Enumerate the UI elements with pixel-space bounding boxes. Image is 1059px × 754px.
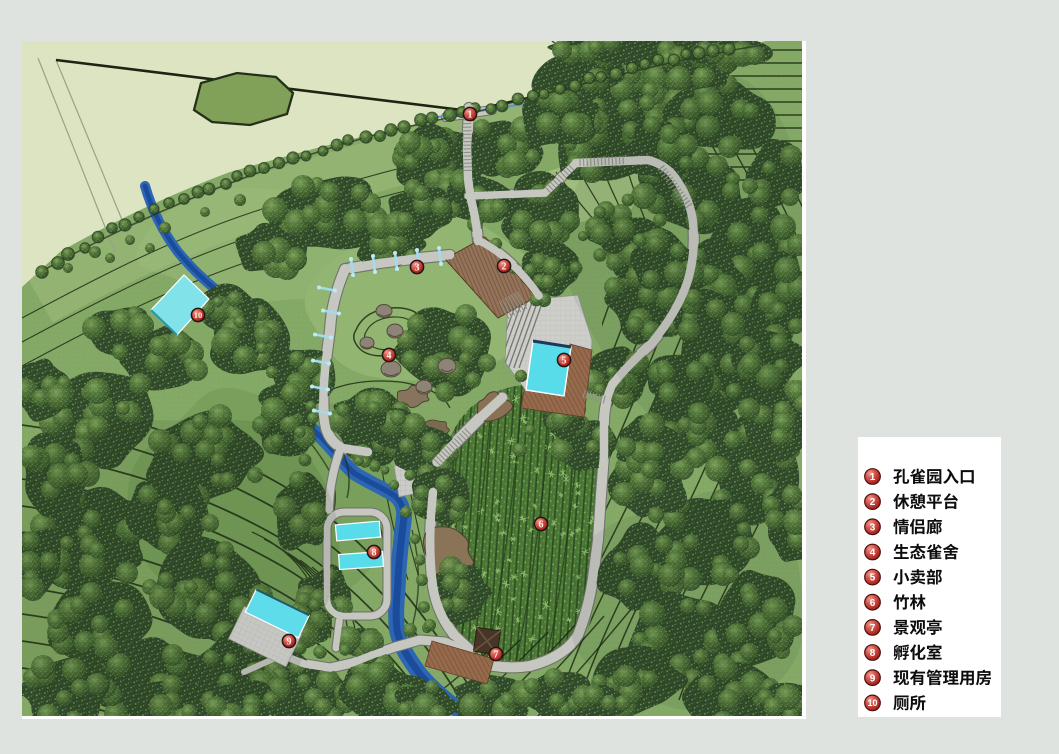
svg-text:8: 8 [870, 648, 876, 659]
svg-text:2: 2 [870, 497, 876, 508]
svg-text:9: 9 [287, 637, 292, 648]
svg-text:5: 5 [870, 573, 876, 584]
svg-text:8: 8 [372, 548, 377, 559]
svg-text:6: 6 [870, 598, 876, 609]
svg-text:7: 7 [494, 650, 499, 661]
svg-text:3: 3 [870, 522, 876, 533]
svg-text:4: 4 [870, 548, 876, 559]
svg-text:9: 9 [870, 673, 876, 684]
svg-text:10: 10 [867, 698, 877, 708]
svg-text:3: 3 [415, 263, 420, 274]
svg-text:4: 4 [387, 351, 392, 362]
svg-text:5: 5 [562, 356, 567, 367]
svg-text:1: 1 [870, 472, 876, 483]
svg-text:10: 10 [194, 310, 203, 320]
svg-text:2: 2 [502, 262, 507, 273]
svg-text:1: 1 [468, 110, 473, 121]
svg-text:6: 6 [539, 520, 544, 531]
svg-text:7: 7 [870, 623, 876, 634]
